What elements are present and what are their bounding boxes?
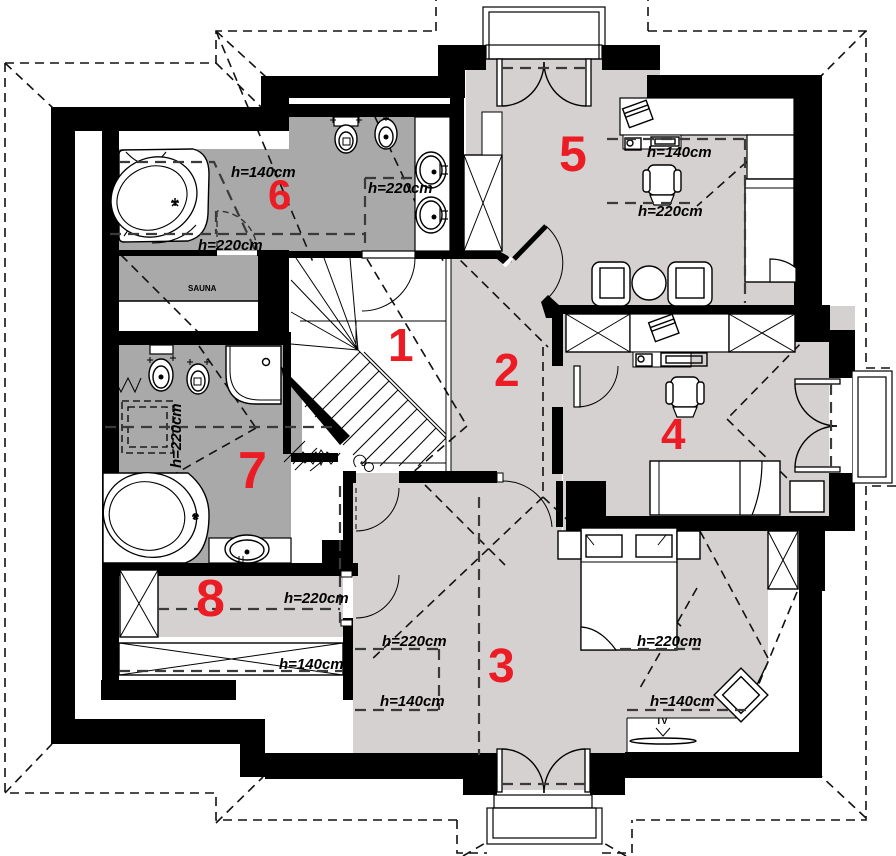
svg-text:h=140cm: h=140cm [380, 693, 445, 710]
svg-text:h=140cm: h=140cm [650, 693, 715, 710]
svg-text:2: 2 [494, 344, 520, 396]
svg-text:h=220cm: h=220cm [368, 180, 433, 197]
svg-text:h=220cm: h=220cm [284, 590, 349, 607]
svg-text:6: 6 [268, 171, 291, 218]
svg-text:h=220cm: h=220cm [638, 203, 703, 220]
svg-text:h=140cm: h=140cm [279, 656, 344, 673]
svg-text:1: 1 [388, 319, 414, 371]
svg-text:h=140cm: h=140cm [647, 144, 712, 161]
svg-text:5: 5 [559, 126, 587, 182]
svg-text:h=220cm: h=220cm [198, 237, 263, 254]
svg-text:SAUNA: SAUNA [188, 284, 217, 293]
svg-text:4: 4 [661, 410, 686, 459]
svg-text:3: 3 [488, 640, 515, 693]
svg-text:TV: TV [656, 716, 668, 726]
svg-text:h=220cm: h=220cm [637, 633, 702, 650]
svg-text:h=220cm: h=220cm [168, 403, 185, 468]
svg-text:h=220cm: h=220cm [382, 633, 447, 650]
svg-text:8: 8 [196, 570, 225, 628]
svg-text:7: 7 [238, 442, 267, 500]
